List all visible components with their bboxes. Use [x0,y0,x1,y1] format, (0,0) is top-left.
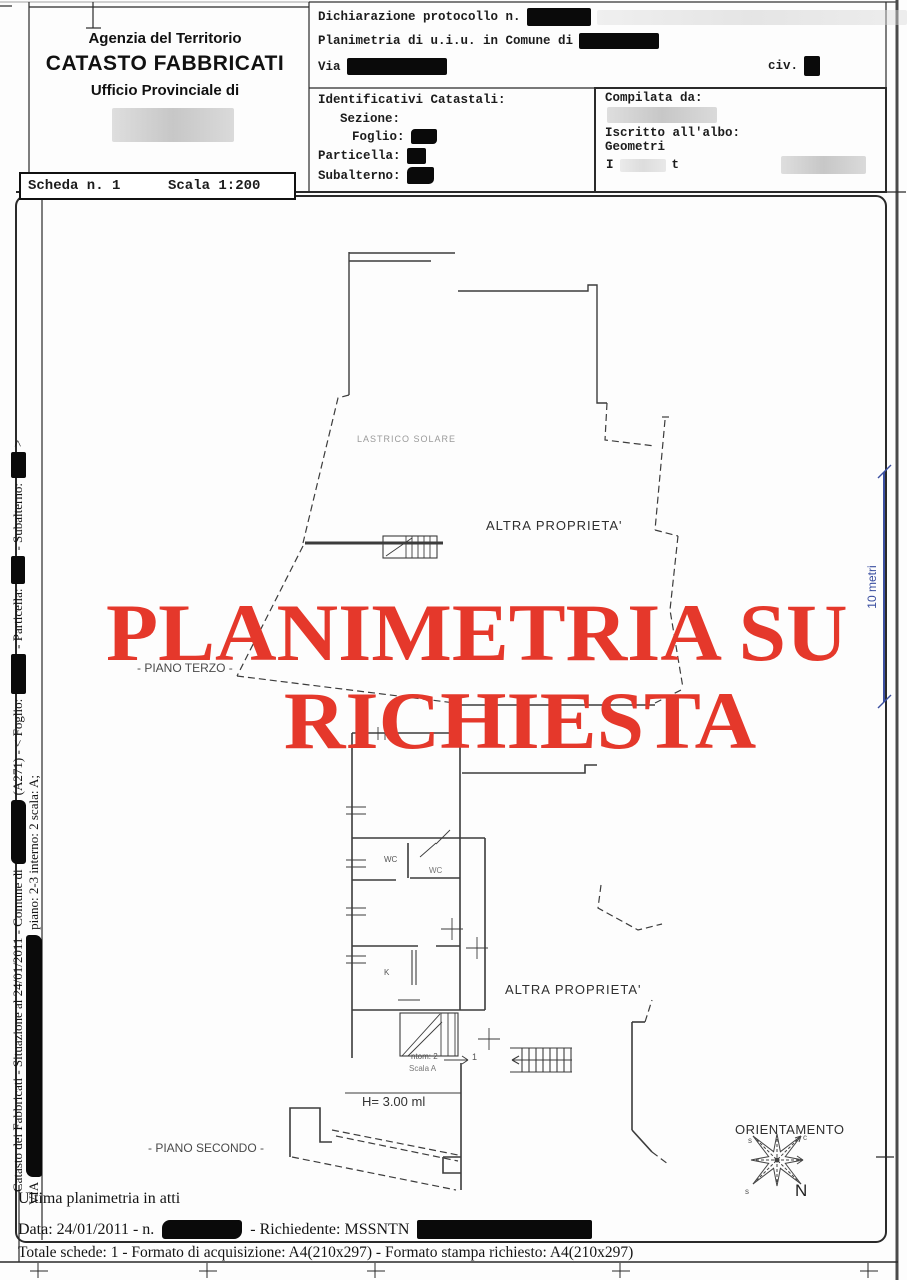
stamp-line-1: PLANIMETRIA SU [106,592,834,674]
altra-proprieta-top-label: ALTRA PROPRIETA' [486,518,622,533]
footer-ultima: Ultima planimetria in atti [18,1190,180,1208]
redaction-street-name [347,58,447,75]
sidebar-floor-info: piano: 2-3 interno: 2 scala: A; [26,775,42,930]
footer-richiedente-label: - Richiedente: MSSNTN [250,1221,409,1239]
sidebar-seg-2: (A271) - < Foglio: [10,699,26,796]
kitchen-label: K [384,968,389,977]
albo-label: Iscritto all'albo: [605,126,740,140]
footer-totale: Totale schede: 1 - Formato di acquisizio… [18,1244,633,1262]
agency-office-label: Ufficio Provinciale di [40,82,290,99]
redaction-foglio [411,129,437,144]
redaction-compiler-name [607,107,717,123]
redaction-compiler-mid [620,159,666,172]
redaction-protocol-number [527,8,591,26]
sidebar-seg-5: > [10,440,26,447]
redaction-comune-name [579,33,659,49]
via-label: Via [318,60,341,74]
stair-arrow-label: 1 [472,1052,477,1062]
compiler-partial-1: I [606,158,614,172]
redaction-civic-number [804,56,820,76]
compass-tip-sw: s [748,1136,752,1145]
sidebar-address-line: VIA piano: 2-3 interno: 2 scala: A; [26,755,42,1205]
redaction-footer-number [162,1220,242,1239]
compass-rose-icon [751,1134,803,1186]
foglio-label: Foglio: [352,130,405,144]
redaction-sidebar-comune [11,800,26,864]
scale-bar-label: 10 metri [865,565,879,608]
redaction-compiler-right [781,156,866,174]
redaction-protocol-extra [597,10,907,25]
agency-register-title: CATASTO FABBRICATI [30,52,300,76]
stair-note-line2: Scala A [409,1064,436,1073]
redaction-sidebar-foglio [11,654,26,694]
altra-proprieta-bottom-label: ALTRA PROPRIETA' [505,982,641,997]
redaction-footer-richiedente [417,1220,592,1239]
agency-name: Agenzia del Territorio [40,30,290,47]
sidebar-seg-4: - Subalterno: [10,483,26,551]
redaction-sidebar-particella [11,556,25,584]
compiler-partial-2: t [672,158,680,172]
civ-label: civ. [768,59,798,73]
stamp-line-2: RICHIESTA [109,680,907,762]
wc2-label: WC [429,866,442,875]
cadastral-sheet: 10 metri s c s N Agenzia del Territorio … [0,0,907,1280]
albo-value: Geometri [605,140,665,154]
wc1-label: WC [384,855,397,864]
footer-data-label: Data: 24/01/2011 - n. [18,1221,154,1239]
redaction-office-name [112,108,234,142]
redaction-particella [407,148,426,164]
sheet-scale: Scala 1:200 [168,178,260,194]
compiler-title: Compilata da: [605,91,703,105]
protocol-label: Dichiarazione protocollo n. [318,10,521,24]
planimetria-label: Planimetria di u.i.u. in Comune di [318,34,573,48]
particella-label: Particella: [318,149,401,163]
sidebar-seg-3: - Particella: [10,589,26,649]
stair-note-line1: ntom: 2 [411,1052,438,1061]
height-note-label: H= 3.00 ml [362,1094,425,1109]
sidebar-situation-line: Catasto dei Fabbricati - Situazione al 2… [10,352,26,1192]
lastrico-solare-label: LASTRICO SOLARE [357,434,456,444]
redaction-sidebar-subalterno [11,452,26,478]
scale-bar [878,465,891,708]
piano-secondo-label: - PIANO SECONDO - [148,1141,264,1155]
subalterno-label: Subalterno: [318,169,401,183]
orientamento-label: ORIENTAMENTO [735,1122,845,1137]
sheet-number: Scheda n. 1 [28,178,120,194]
lower-floor-plan [290,727,668,1190]
identifiers-title: Identificativi Catastali: [318,93,506,107]
redaction-sidebar-street [26,935,42,1177]
sidebar-seg-1: Catasto dei Fabbricati - Situazione al 2… [10,869,26,1192]
sezione-label: Sezione: [340,112,400,126]
redaction-subalterno [407,167,434,184]
